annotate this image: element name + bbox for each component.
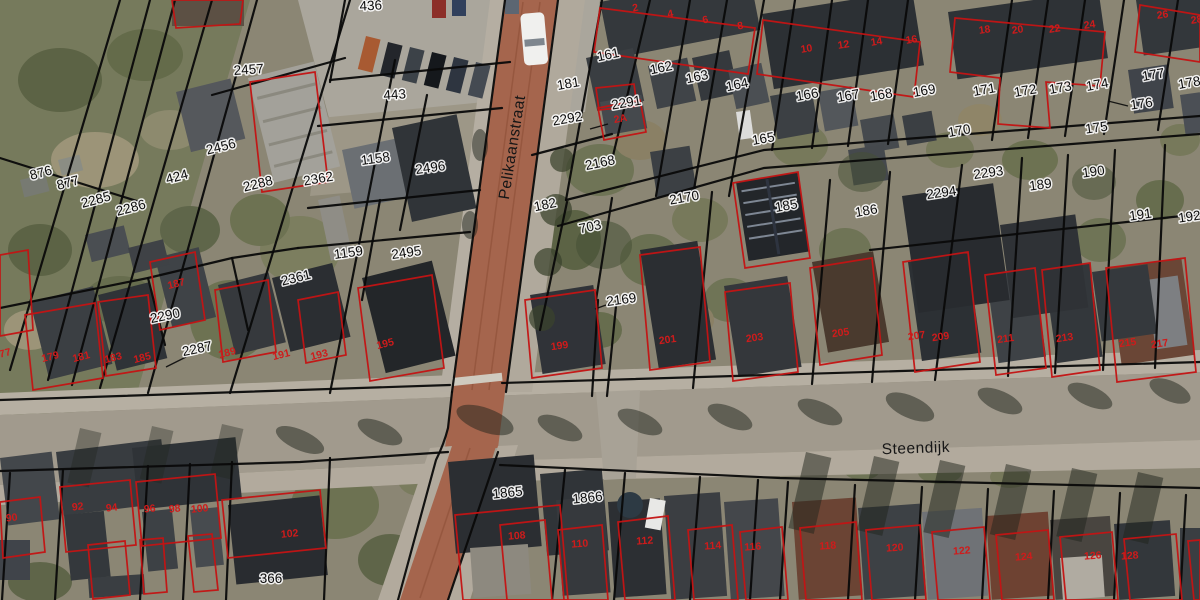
parcel-number-label: 2457 [233,61,264,78]
house-number-label: 98 [168,502,181,515]
house-number-label: 118 [819,539,837,552]
parcel-number-label: 191 [1128,206,1152,224]
house-number-label: 215 [1118,336,1137,350]
house-number-label: 217 [1150,337,1169,351]
house-number-label: 124 [1015,550,1033,563]
house-number-label: 100 [190,502,209,516]
house-number-label: 24 [1083,18,1096,32]
house-number-label: 213 [1055,331,1074,345]
street-name-label: Steendijk [881,439,950,458]
house-number-label: 10 [800,42,814,56]
house-number-label: 22 [1048,22,1061,36]
house-number-label: 114 [704,539,722,552]
parcel-number-label: 190 [1081,163,1105,181]
house-number-label: 16 [905,33,919,47]
house-number-label: 122 [953,544,971,557]
house-number-label: 20 [1011,23,1024,37]
house-number-label: 209 [931,330,950,344]
house-number-label: 108 [508,529,526,542]
house-number-label: 199 [550,339,569,353]
house-number-label: 26 [1156,8,1169,22]
parcel-number-label: 175 [1084,119,1108,137]
house-number-label: 207 [907,329,926,343]
house-number-label: 112 [636,534,654,547]
house-number-label: 126 [1084,549,1102,562]
house-number-label: 2A [613,112,629,126]
map-viewport[interactable]: PelikaanstraatSteendijk 4364432457245622… [0,0,1200,600]
parcel-number-label: 176 [1129,95,1153,113]
house-number-label: 201 [658,333,677,347]
house-number-label: 120 [886,541,904,554]
house-number-label: 110 [571,537,589,550]
house-number-label: 14 [870,35,884,49]
house-number-label: 205 [831,326,850,340]
parcel-number-label: 366 [260,571,283,586]
house-number-label: 94 [105,501,118,514]
house-number-label: 28 [1190,13,1200,27]
house-number-label: 116 [744,540,762,553]
parcel-number-label: 192 [1177,208,1200,226]
house-number-label: 102 [280,527,299,541]
house-number-label: 211 [996,332,1015,346]
house-number-label: 203 [745,331,764,345]
parcel-number-label: 1866 [572,488,603,506]
house-number-label: 12 [837,38,851,52]
map-canvas[interactable]: PelikaanstraatSteendijk 4364432457245622… [0,0,1200,600]
house-number-label: 128 [1121,549,1139,562]
van [520,12,548,66]
house-number-label: 90 [5,511,18,524]
parcel-number-label: 189 [1028,176,1052,194]
house-number-label: 92 [71,500,84,513]
parcel-number-label: 436 [359,0,382,14]
parcel-number-label: 443 [383,86,407,103]
house-number-label: 96 [143,502,156,515]
house-number-label: 18 [978,23,991,37]
parcel-number-label: 1865 [492,483,523,501]
